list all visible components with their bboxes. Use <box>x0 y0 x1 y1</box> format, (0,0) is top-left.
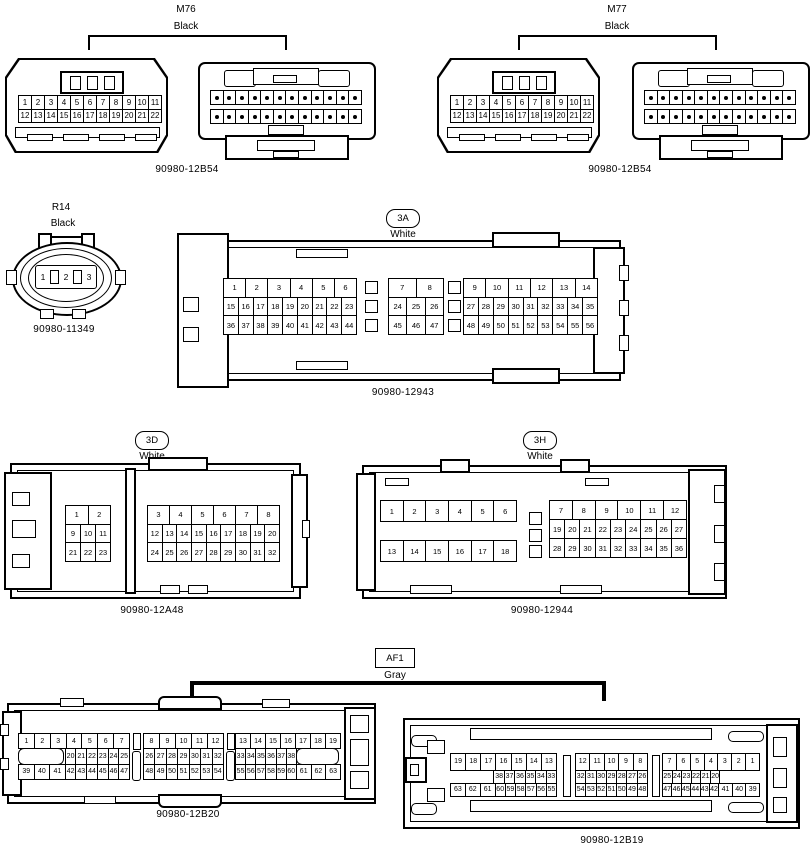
pin-cavity: 53 <box>537 315 553 335</box>
pin-cavity: 19 <box>109 109 123 124</box>
pin-cavity: 15 <box>57 109 71 124</box>
rear-center-tab <box>687 68 753 85</box>
pin-cavity: 10 <box>175 733 192 749</box>
r14-pin-slot: 123 <box>35 265 97 289</box>
pin-cavity: 2 <box>463 95 477 110</box>
pin-row: 123456 <box>380 500 517 522</box>
pin-cavity: 11 <box>640 500 664 520</box>
pin-row: 192021222324252627 <box>549 519 687 539</box>
pin-cavity: 17 <box>83 109 97 124</box>
pin-row: 13141516171819 <box>235 733 341 749</box>
pin-cavity: 13 <box>541 753 557 771</box>
3a-pin-block-3: 9101112131427282930313233343548495051525… <box>463 278 598 335</box>
af1-id-tag: AF1 <box>375 648 415 668</box>
pin-cavity: 2 <box>34 733 51 749</box>
3h-id-tag: 3H <box>523 431 557 450</box>
m77-bracket <box>518 35 717 50</box>
terminal-dot <box>757 110 770 123</box>
pin-cavity: 39 <box>745 783 760 797</box>
pin-cavity: 1 <box>18 95 32 110</box>
pin-cavity: 35 <box>656 538 672 558</box>
ledge-tab <box>459 134 485 141</box>
pin-row: 78 <box>388 278 444 298</box>
separator-square <box>365 300 378 313</box>
terminal-dot <box>285 91 298 104</box>
pin-cavity: 1 <box>380 500 404 522</box>
pin-divider <box>73 270 82 284</box>
pin-cavity: 48 <box>637 783 648 797</box>
pin-cavity: 20 <box>554 109 568 124</box>
pin-cavity: 50 <box>493 315 509 335</box>
pin-cavity: 10 <box>617 500 641 520</box>
pin-cavity: 20 <box>710 770 721 784</box>
cap-nub <box>619 265 629 281</box>
terminal-dot <box>657 110 670 123</box>
terminal-dot <box>745 110 758 123</box>
terminal-dot <box>348 91 361 104</box>
pin-cavity: 20 <box>264 524 280 544</box>
terminal-dot <box>336 91 349 104</box>
terminal-dot <box>273 110 286 123</box>
cap-notch <box>0 758 9 770</box>
3a-color-label: White <box>390 229 416 240</box>
terminal-dot <box>757 91 770 104</box>
pin-number: 2 <box>59 266 73 288</box>
cap-window <box>405 757 427 783</box>
pin-cavity: 15 <box>425 540 449 562</box>
pin-cavity: 22 <box>148 109 162 124</box>
pin-cavity: 6 <box>515 95 529 110</box>
connector-diagram-page: M76 Black 123456789101112131415161718192… <box>0 0 811 852</box>
pin-cavity: 26 <box>425 297 444 317</box>
block-separator <box>563 755 571 797</box>
pin-cavity: 14 <box>526 753 542 771</box>
pin-cavity: 16 <box>502 109 516 124</box>
pin-cavity: 9 <box>463 278 486 298</box>
pin-cavity: 5 <box>471 500 495 522</box>
pin-cavity: 30 <box>508 297 524 317</box>
pin-cavity: 12 <box>450 109 464 124</box>
terminal-dot <box>348 110 361 123</box>
pin-cavity: 2 <box>31 95 45 110</box>
terminal-dot <box>211 110 223 123</box>
pin-cavity: 16 <box>280 733 296 749</box>
separator-square <box>448 300 461 313</box>
battlement-slot <box>519 76 530 90</box>
block-separator-squares <box>448 281 461 332</box>
pin-cavity: 5 <box>191 505 214 525</box>
pin-cavity: 19 <box>282 297 298 317</box>
pin-cavity: 19 <box>541 109 555 124</box>
terminal-strip <box>644 90 796 105</box>
pin-row: 282930313233343536 <box>549 538 687 558</box>
pin-cavity: 4 <box>169 505 192 525</box>
af1-left-pin-block-3: 1314151617181933343536373855565758596061… <box>235 733 341 780</box>
cap-bar <box>773 797 787 813</box>
pin-cavity: 3 <box>717 753 732 771</box>
top-bump <box>60 698 84 707</box>
battlement-slot <box>536 76 547 90</box>
m76-rear-housing <box>198 62 376 140</box>
pin-cavity: 23 <box>610 519 626 539</box>
pin-cavity: 32 <box>537 297 553 317</box>
pin-cavity: 31 <box>523 297 539 317</box>
terminal-dot <box>311 110 324 123</box>
pin-cavity: 6 <box>83 95 97 110</box>
block-separator-squares <box>529 512 542 558</box>
pin-row: 555657585960616263 <box>235 764 341 780</box>
pin-row: 363738394041424344 <box>223 315 357 335</box>
crimp-detail <box>350 739 369 766</box>
m76-pin-grid: 12345678910111213141516171819202122 <box>18 95 162 123</box>
terminal-dot <box>323 110 336 123</box>
terminal-dot <box>285 110 298 123</box>
3a-pin-block-1: 1234561516171819202122233637383940414243… <box>223 278 357 335</box>
pin-cavity: 29 <box>493 297 509 317</box>
pin-cavity: 4 <box>704 753 719 771</box>
pin-cavity: 44 <box>341 315 357 335</box>
terminal-dot <box>223 91 236 104</box>
m76-bracket <box>88 35 287 50</box>
m76-name-label: M76 <box>176 4 195 15</box>
pin-cavity: 3 <box>147 505 170 525</box>
pin-cavity: 12 <box>147 524 163 544</box>
pin-cavity: 6 <box>97 733 114 749</box>
terminal-dot <box>732 91 745 104</box>
bottom-dome <box>158 794 222 808</box>
pin-row: 242526272829303132 <box>147 542 280 562</box>
3a-pin-block-2: 78242526454647 <box>388 278 444 335</box>
pin-cavity: 54 <box>552 315 568 335</box>
pin-cavity: 21 <box>312 297 328 317</box>
m77-color-label: Black <box>605 21 629 32</box>
pin-cavity: 16 <box>448 540 472 562</box>
pin-cavity: 42 <box>312 315 328 335</box>
pin-cavity: 34 <box>640 538 656 558</box>
m77-rear-extension <box>659 135 783 160</box>
pin-cavity: 2 <box>88 505 112 525</box>
separator-square <box>448 319 461 332</box>
terminal-dot <box>211 91 223 104</box>
pin-cavity: 15 <box>265 733 281 749</box>
m77-name-label: M77 <box>607 4 626 15</box>
pin-cavity: 6 <box>334 278 357 298</box>
terminal-dot <box>336 110 349 123</box>
pin-cavity: 27 <box>463 297 479 317</box>
pin-cavity: 7 <box>96 95 110 110</box>
pin-row: 333435363738 <box>235 748 341 764</box>
r14-side-ear <box>115 270 126 285</box>
pin-cavity: 24 <box>388 297 407 317</box>
pin-cavity: 26 <box>656 519 672 539</box>
housing-battlement <box>60 71 124 94</box>
3h-pin-block-2: 7891011121920212223242526272829303132333… <box>549 500 687 558</box>
pin-cavity: 32 <box>610 538 626 558</box>
r14-name-label: R14 <box>52 202 70 213</box>
pin-cavity: 34 <box>567 297 583 317</box>
pin-cavity: 12 <box>18 109 32 124</box>
pin-cavity: 39 <box>18 764 35 780</box>
pin-cavity: 1 <box>745 753 760 771</box>
af1-left-part-number: 90980-12B20 <box>156 809 219 820</box>
pin-cavity: 25 <box>118 748 130 764</box>
3d-pin-block-2: 3456781213141516171819202425262728293031… <box>147 505 280 562</box>
pin-cavity: 16 <box>70 109 84 124</box>
cap-detail <box>12 492 30 506</box>
pin-cavity: 32 <box>264 542 280 562</box>
pin-cavity: 63 <box>325 764 341 780</box>
pin-cavity: 3 <box>44 95 58 110</box>
block-separator <box>226 751 235 781</box>
pin-cavity: 24 <box>625 519 641 539</box>
pin-cavity: 7 <box>549 500 573 520</box>
pin-row: 474645444342414039 <box>662 783 760 797</box>
pin-row: 484950515253545556 <box>463 315 598 335</box>
af1-left-pin-block-2: 891011122627282930313248495051525354 <box>143 733 224 780</box>
pin-cavity: 62 <box>465 783 481 797</box>
latch <box>691 140 749 151</box>
pin-row: 1234567891011 <box>450 95 594 110</box>
m76-rear-extension <box>225 135 349 160</box>
cap-nub <box>714 525 725 543</box>
pin-cavity: 20 <box>564 519 580 539</box>
m76-front-housing: 12345678910111213141516171819202122 <box>5 58 168 153</box>
pin-cavity: 15 <box>223 297 239 317</box>
pin-cavity: 29 <box>564 538 580 558</box>
pin-cavity: 4 <box>448 500 472 522</box>
pin-row: 19181716151413 <box>450 753 557 771</box>
pin-row: 212223 <box>65 542 111 562</box>
inner-slot <box>585 478 609 486</box>
terminal-dot <box>732 110 745 123</box>
pin-cavity: 46 <box>406 315 425 335</box>
pin-cavity: 31 <box>595 538 611 558</box>
terminal-dot <box>248 91 261 104</box>
cap-bar <box>773 737 787 757</box>
terminal-dot <box>248 110 261 123</box>
pin-cavity: 11 <box>191 733 208 749</box>
pin-cavity: 8 <box>416 278 445 298</box>
terminal-dot <box>707 91 720 104</box>
pin-cavity: 3 <box>50 733 67 749</box>
terminal-dot <box>273 91 286 104</box>
pin-cavity: 14 <box>250 733 266 749</box>
pin-cavity: 3 <box>476 95 490 110</box>
battlement-slot <box>502 76 513 90</box>
latch <box>257 140 315 151</box>
pin-cavity: 12 <box>530 278 553 298</box>
pin-cavity: 9 <box>65 524 81 544</box>
pin-cavity: 18 <box>493 540 517 562</box>
block-separator <box>227 733 235 750</box>
pin-cavity: 1 <box>65 505 89 525</box>
blank-cavity <box>18 748 64 764</box>
ledge-tab <box>99 134 125 141</box>
bottom-bump <box>84 796 116 804</box>
af1-right-pin-block-3: 7654321252423222120474645444342414039 <box>662 753 760 797</box>
pin-cavity: 11 <box>95 524 111 544</box>
top-bump <box>262 699 290 708</box>
terminal-dot <box>223 110 236 123</box>
r14-color-label: Black <box>51 218 75 229</box>
pin-cavity: 63 <box>450 783 466 797</box>
pin-cavity: 16 <box>206 524 222 544</box>
pin-number: 3 <box>82 266 96 288</box>
pin-cavity: 4 <box>57 95 71 110</box>
m76-color-label: Black <box>174 21 198 32</box>
inner-step <box>296 361 348 370</box>
pin-cavity: 9 <box>595 500 619 520</box>
pin-cavity: 6 <box>676 753 691 771</box>
terminal-dot <box>323 91 336 104</box>
ledge-tab <box>135 134 157 141</box>
pin-cavity: 12 <box>663 500 687 520</box>
pin-cavity: 5 <box>502 95 516 110</box>
pin-cavity: 9 <box>618 753 633 771</box>
3h-pin-block-1: 123456131415161718 <box>380 500 517 562</box>
pin-row: 242526 <box>388 297 444 317</box>
pin-cavity: 9 <box>122 95 136 110</box>
pin-cavity: 14 <box>476 109 490 124</box>
cap-notch <box>0 724 9 736</box>
pin-row: 89101112 <box>143 733 224 749</box>
block-separator <box>652 755 660 797</box>
pin-cavity: 4 <box>290 278 313 298</box>
pin-cavity: 13 <box>552 278 575 298</box>
af1-bracket <box>190 681 606 701</box>
terminal-dot <box>260 110 273 123</box>
terminal-dot <box>782 110 795 123</box>
pin-cavity: 47 <box>425 315 444 335</box>
pin-cavity: 29 <box>220 542 236 562</box>
pin-cavity: 11 <box>589 753 604 771</box>
pin-cavity: 45 <box>388 315 407 335</box>
pin-cavity: 7 <box>388 278 417 298</box>
pin-cavity: 55 <box>546 783 557 797</box>
pin-cavity: 27 <box>671 519 687 539</box>
pin-cavity: 61 <box>296 764 312 780</box>
blank-cavity <box>296 748 339 764</box>
bottom-slot <box>410 585 452 594</box>
pin-cavity: 33 <box>625 538 641 558</box>
cap-detail <box>183 327 199 342</box>
af1-left-crimp-section <box>344 707 376 800</box>
pin-cavity: 19 <box>450 753 466 771</box>
pin-cavity: 21 <box>65 542 81 562</box>
ledge-tab <box>495 134 521 141</box>
pin-cavity: 21 <box>579 519 595 539</box>
pin-row: 123456 <box>223 278 357 298</box>
crimp-detail <box>350 771 369 789</box>
pin-row: 272829303132333435 <box>463 297 598 317</box>
terminal-dot <box>707 110 720 123</box>
pin-row: 12 <box>65 505 111 525</box>
pin-row: 32313029282726 <box>575 770 648 784</box>
r14-side-ear <box>6 270 17 285</box>
pin-cavity: 11 <box>580 95 594 110</box>
terminal-dot <box>657 91 670 104</box>
m77-pin-grid: 12345678910111213141516171819202122 <box>450 95 594 123</box>
pin-cavity: 1 <box>223 278 246 298</box>
pin-cavity: 15 <box>191 524 207 544</box>
terminal-dot <box>298 110 311 123</box>
3h-color-label: White <box>527 451 553 462</box>
pin-cavity: 10 <box>80 524 96 544</box>
bottom-slot <box>160 585 180 594</box>
pin-cavity: 47 <box>118 764 130 780</box>
rear-slot-left <box>658 70 690 87</box>
housing-battlement <box>492 71 556 94</box>
pin-cavity: 5 <box>70 95 84 110</box>
terminal-dot <box>782 91 795 104</box>
latch-tab <box>273 151 299 158</box>
pin-cavity: 4 <box>489 95 503 110</box>
3a-bottom-tab <box>492 368 560 384</box>
pin-cavity: 61 <box>480 783 496 797</box>
cap-step <box>427 740 445 754</box>
pin-cavity: 30 <box>579 538 595 558</box>
cap-nub <box>302 520 310 538</box>
rear-center-tab-inner <box>707 75 731 83</box>
pin-cavity: 22 <box>595 519 611 539</box>
pin-cavity: 20 <box>122 109 136 124</box>
pin-cavity: 20 <box>297 297 313 317</box>
pin-cavity: 14 <box>575 278 598 298</box>
oval-slot <box>728 802 764 813</box>
pin-cavity: 40 <box>282 315 298 335</box>
pin-cavity: 21 <box>135 109 149 124</box>
pin-cavity: 15 <box>511 753 527 771</box>
pin-cavity: 18 <box>528 109 542 124</box>
af1-right-part-number: 90980-12B19 <box>580 835 643 846</box>
pin-row: 454647 <box>388 315 444 335</box>
pin-cavity: 5 <box>81 733 98 749</box>
terminal-dot <box>311 91 324 104</box>
af1-right-pin-block-2: 121110983231302928272654535251504948 <box>575 753 648 797</box>
pin-row: 636261605958575655 <box>450 783 557 797</box>
pin-cavity: 24 <box>147 542 163 562</box>
pin-row: 383736353433 <box>450 770 557 784</box>
battlement-slot <box>87 76 98 90</box>
separator-square <box>529 529 542 542</box>
terminal-dot <box>745 91 758 104</box>
ledge-tab <box>531 134 557 141</box>
pin-cavity: 3 <box>425 500 449 522</box>
pin-cavity: 25 <box>162 542 178 562</box>
pin-cavity: 26 <box>176 542 192 562</box>
pin-cavity: 17 <box>471 540 495 562</box>
pin-cavity: 7 <box>662 753 677 771</box>
separator-square <box>529 512 542 525</box>
terminal-dot <box>235 110 248 123</box>
pin-cavity: 18 <box>310 733 326 749</box>
pin-cavity: 17 <box>295 733 311 749</box>
terminal-dot <box>719 91 732 104</box>
m77-part-number: 90980-12B54 <box>588 164 651 175</box>
pin-cavity: 36 <box>671 538 687 558</box>
oval-slot <box>411 803 437 815</box>
pin-row: 1234567 <box>18 733 130 749</box>
battlement-slot <box>70 76 81 90</box>
crimp-detail <box>350 715 369 733</box>
block-separator-squares <box>365 281 378 332</box>
cap-nub <box>619 300 629 316</box>
pin-row: 394041424344454647 <box>18 764 130 780</box>
pin-cavity: 19 <box>325 733 341 749</box>
terminal-strip <box>210 109 362 124</box>
pin-cavity: 2 <box>245 278 268 298</box>
pin-cavity: 8 <box>572 500 596 520</box>
